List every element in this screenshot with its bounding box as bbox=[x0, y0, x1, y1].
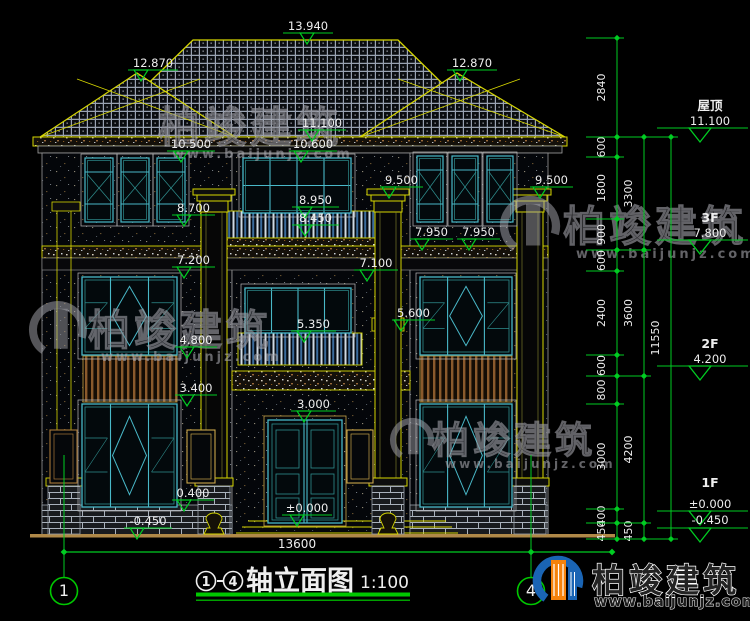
elevation-value: 3.400 bbox=[180, 381, 213, 395]
axis-number: 1 bbox=[59, 581, 69, 600]
elevation-value: 5.350 bbox=[297, 317, 330, 331]
title-axis-bubbles: 14 bbox=[197, 572, 243, 591]
side-window bbox=[187, 430, 215, 483]
dim-label: 600 bbox=[595, 250, 608, 271]
total-width-dim: 13600 bbox=[278, 537, 316, 551]
floor-elevation: 4.200 bbox=[694, 352, 727, 366]
elevation-value: 8.450 bbox=[299, 211, 332, 225]
side-window bbox=[347, 430, 373, 483]
right-dimension-block: 2840600180090060024006008003000400450330… bbox=[586, 35, 678, 542]
drawing-scale: 1:100 bbox=[360, 573, 409, 593]
title-axis-number: 4 bbox=[228, 575, 237, 590]
elevation-value: 7.100 bbox=[360, 256, 393, 270]
dim-label: 3000 bbox=[595, 443, 608, 471]
dim-label: 600 bbox=[595, 137, 608, 158]
floor-elevation: 11.100 bbox=[690, 114, 730, 128]
watermark-text: 柏竣建筑 bbox=[432, 419, 596, 462]
dim-label: 600 bbox=[595, 355, 608, 376]
pedestal-cap bbox=[511, 478, 549, 486]
dim-tick bbox=[609, 549, 616, 556]
title-axis-number: 1 bbox=[201, 575, 210, 590]
lattice-window bbox=[416, 273, 516, 359]
floor-elevation: 7.800 bbox=[694, 226, 727, 240]
dim-label: 900 bbox=[595, 224, 608, 245]
brand-logo: 柏竣建筑 www.baijunjz.com bbox=[529, 552, 750, 610]
floor-name: 3F bbox=[701, 210, 718, 225]
elevation-value: 0.400 bbox=[177, 486, 210, 500]
drawing-title: 轴立面图 bbox=[246, 565, 354, 597]
floor-elevation: -0.450 bbox=[691, 513, 728, 527]
dim-label: 11550 bbox=[649, 321, 662, 356]
title-block: 14 轴立面图 1:100 bbox=[196, 565, 410, 601]
title-underline-thick bbox=[196, 593, 410, 597]
narrow-window bbox=[483, 152, 517, 226]
elevation-value: 5.600 bbox=[397, 306, 430, 320]
pedestal-brick bbox=[514, 486, 546, 534]
narrow-window bbox=[413, 152, 447, 226]
elevation-value: 10.600 bbox=[293, 137, 333, 151]
pedestal-cap bbox=[369, 478, 407, 486]
elevation-value: 9.500 bbox=[535, 173, 568, 187]
floor-elevation: ±0.000 bbox=[689, 497, 732, 511]
narrow-window bbox=[81, 154, 117, 226]
dim-label: 3300 bbox=[622, 180, 635, 208]
dim-label: 3600 bbox=[622, 299, 635, 327]
elevation-value: -0.450 bbox=[129, 514, 166, 528]
elevation-value: 4.800 bbox=[180, 333, 213, 347]
logo-building-blue-icon bbox=[568, 568, 577, 600]
dim-label: 2400 bbox=[595, 299, 608, 327]
dim-label: 800 bbox=[595, 380, 608, 401]
dim-label: 2840 bbox=[595, 74, 608, 102]
balcony-slab bbox=[221, 238, 383, 246]
elevation-value: 9.500 bbox=[385, 173, 418, 187]
dim-label: 450 bbox=[622, 521, 635, 542]
floor-name: 1F bbox=[701, 475, 718, 490]
brand-url: www.baijunjz.com bbox=[594, 594, 750, 610]
elevation-value: 7.200 bbox=[177, 253, 210, 267]
narrow-window bbox=[117, 154, 153, 226]
dim-label: 1800 bbox=[595, 174, 608, 202]
floor-name: 屋顶 bbox=[697, 98, 723, 113]
elevation-value: 7.950 bbox=[415, 225, 448, 239]
elevation-value: 12.870 bbox=[452, 56, 492, 70]
elevation-value: 8.700 bbox=[177, 201, 210, 215]
ground-line bbox=[30, 534, 615, 538]
elevation-value: 10.500 bbox=[171, 137, 211, 151]
floor-name: 2F bbox=[701, 336, 718, 351]
watermark-url: www.baijunjz.com bbox=[101, 350, 282, 365]
elevation-value: 7.950 bbox=[462, 225, 495, 239]
dim-label: 450 bbox=[595, 521, 608, 542]
elevation-value: 11.100 bbox=[302, 116, 342, 130]
dim-label: 4200 bbox=[622, 436, 635, 464]
elevation-value: ±0.000 bbox=[286, 501, 329, 515]
elevation-value: 3.000 bbox=[297, 397, 330, 411]
elevation-drawing: 柏竣建筑www.baijunjz.com柏竣建筑www.baijunjz.com… bbox=[0, 0, 750, 621]
elevation-value: 13.940 bbox=[288, 19, 328, 33]
elevation-value: 12.870 bbox=[133, 56, 173, 70]
narrow-window bbox=[448, 152, 482, 226]
title-underline-thin bbox=[196, 600, 410, 602]
lattice-window bbox=[78, 400, 181, 511]
elevation-value: 8.950 bbox=[299, 193, 332, 207]
watermark-url: www.baijunjz.com bbox=[445, 457, 616, 471]
floor-band-3f bbox=[42, 246, 548, 270]
